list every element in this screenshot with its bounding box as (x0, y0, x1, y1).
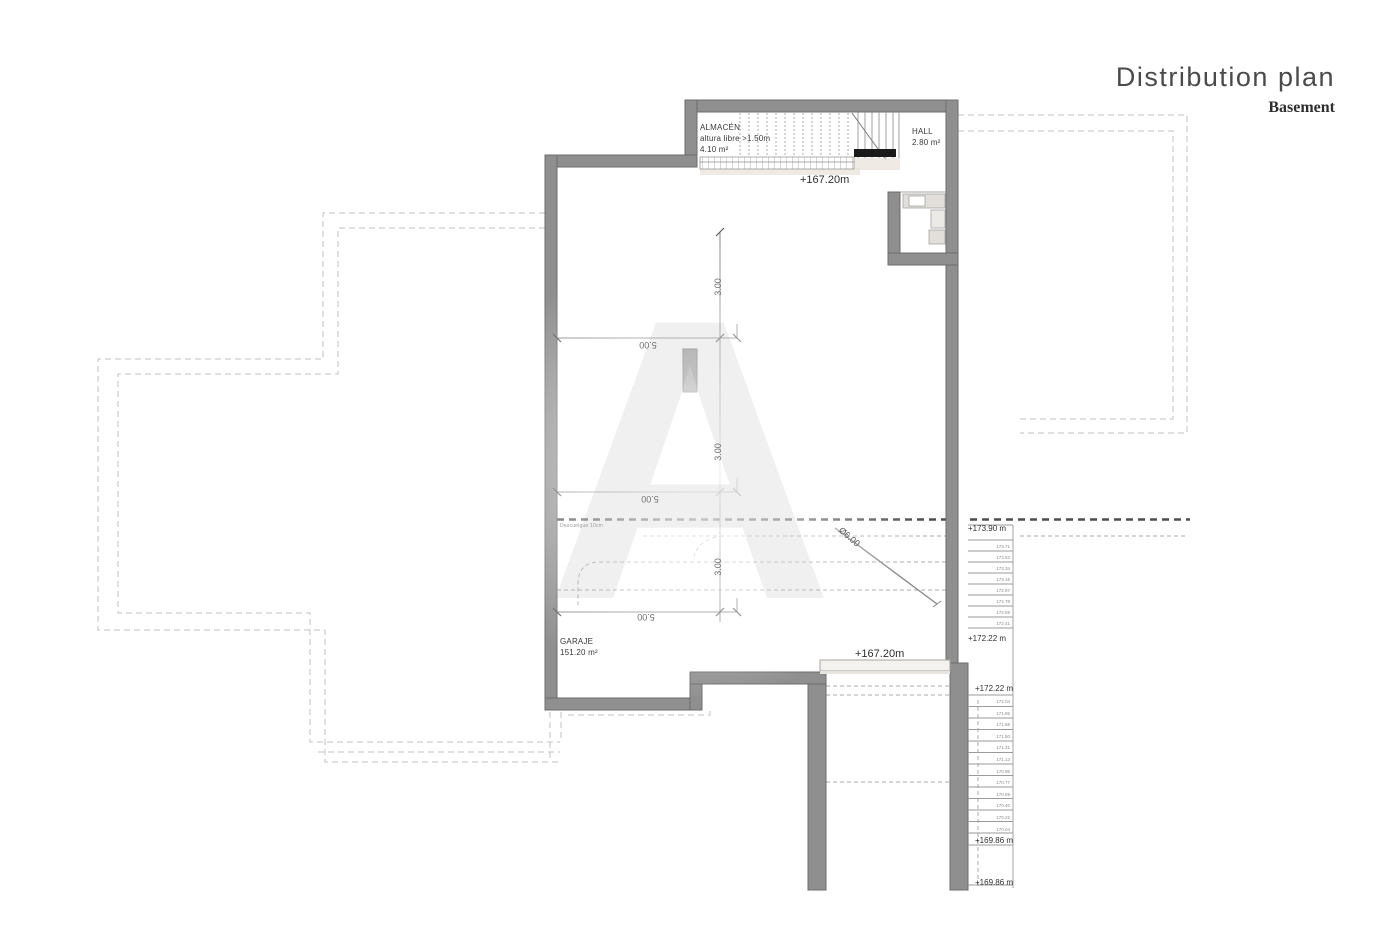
stair-step-value: 170.77 (968, 777, 1010, 789)
stair-step-value: 173.34 (968, 563, 1010, 574)
stair-step-value: 171.50 (968, 731, 1010, 743)
stair-step-value: 171.13 (968, 754, 1010, 766)
column (683, 349, 697, 392)
room-name: HALL (912, 126, 941, 137)
stair-step-value: 170.04 (968, 824, 1010, 836)
plot-boundary-dashed (98, 115, 1187, 762)
stair-step-value: 170.40 (968, 800, 1010, 812)
level-stair-top: +173.90 m (968, 524, 1006, 533)
dim-horizontal-3: 5.00 (628, 612, 664, 622)
bathroom-fixtures (900, 192, 946, 244)
stair-step-value: 170.22 (968, 812, 1010, 824)
page-subtitle: Basement (1116, 99, 1335, 117)
garage-door (820, 660, 950, 674)
page-title: Distribution plan (1116, 62, 1335, 93)
stair-step-value: 173.53 (968, 552, 1010, 563)
stair-step-value: 172.78 (968, 596, 1010, 607)
dim-horizontal-1: 5.00 (630, 340, 666, 350)
stair-step-value: 171.68 (968, 719, 1010, 731)
stair-step-value: 172.04 (968, 696, 1010, 708)
room-name: ALMACÉN (700, 122, 770, 133)
floor-plan-page: A Distribution plan Basement ALMACÉN alt… (0, 0, 1400, 933)
level-stair-bottom: +169.86 m (975, 878, 1013, 887)
dim-horizontal-2: 5.00 (632, 494, 668, 504)
walls (545, 100, 968, 890)
level-stair-upper-landing: +172.22 m (968, 634, 1006, 643)
level-garage-floor: +167.20m (855, 648, 904, 660)
room-label-hall: HALL 2.80 m² (912, 126, 941, 148)
level-storage-floor: +167.20m (800, 174, 849, 186)
room-detail: altura libre >1.50m (700, 133, 770, 144)
room-area: 151.20 m² (560, 647, 598, 658)
level-stair-lower-landing: +169.86 m (975, 836, 1013, 845)
stair-step-value: 171.86 (968, 708, 1010, 720)
stair-step-value: 170.95 (968, 766, 1010, 778)
dim-vertical-2: 3.00 (713, 437, 723, 467)
level-stair-lower-start: +172.22 m (975, 684, 1013, 693)
note-descuelgue: Descuelgue 10cm (560, 523, 603, 529)
stair-step-value: 172.41 (968, 618, 1010, 629)
stair-upper-values: 173.71173.53173.34173.15172.97172.78172.… (968, 541, 1010, 629)
room-label-garaje: GARAJE 151.20 m² (560, 636, 598, 658)
stair-step-value: 173.15 (968, 574, 1010, 585)
title-block: Distribution plan Basement (1116, 62, 1335, 117)
room-name: GARAJE (560, 636, 598, 647)
room-area: 2.80 m² (912, 137, 941, 148)
stair-step-value: 172.97 (968, 585, 1010, 596)
driveway-dashed-lines (557, 536, 1185, 888)
stair-step-value: 170.59 (968, 789, 1010, 801)
room-label-almacen: ALMACÉN altura libre >1.50m 4.10 m² (700, 122, 770, 155)
stair-step-value: 172.59 (968, 607, 1010, 618)
stair-lower-values: 172.04171.86171.68171.50171.31171.13170.… (968, 696, 1010, 835)
room-area: 4.10 m² (700, 144, 770, 155)
dim-vertical-3: 3.00 (713, 552, 723, 582)
stair-step-value: 173.71 (968, 541, 1010, 552)
stair-step-value: 171.31 (968, 742, 1010, 754)
dim-vertical-1: 3.00 (713, 272, 723, 302)
